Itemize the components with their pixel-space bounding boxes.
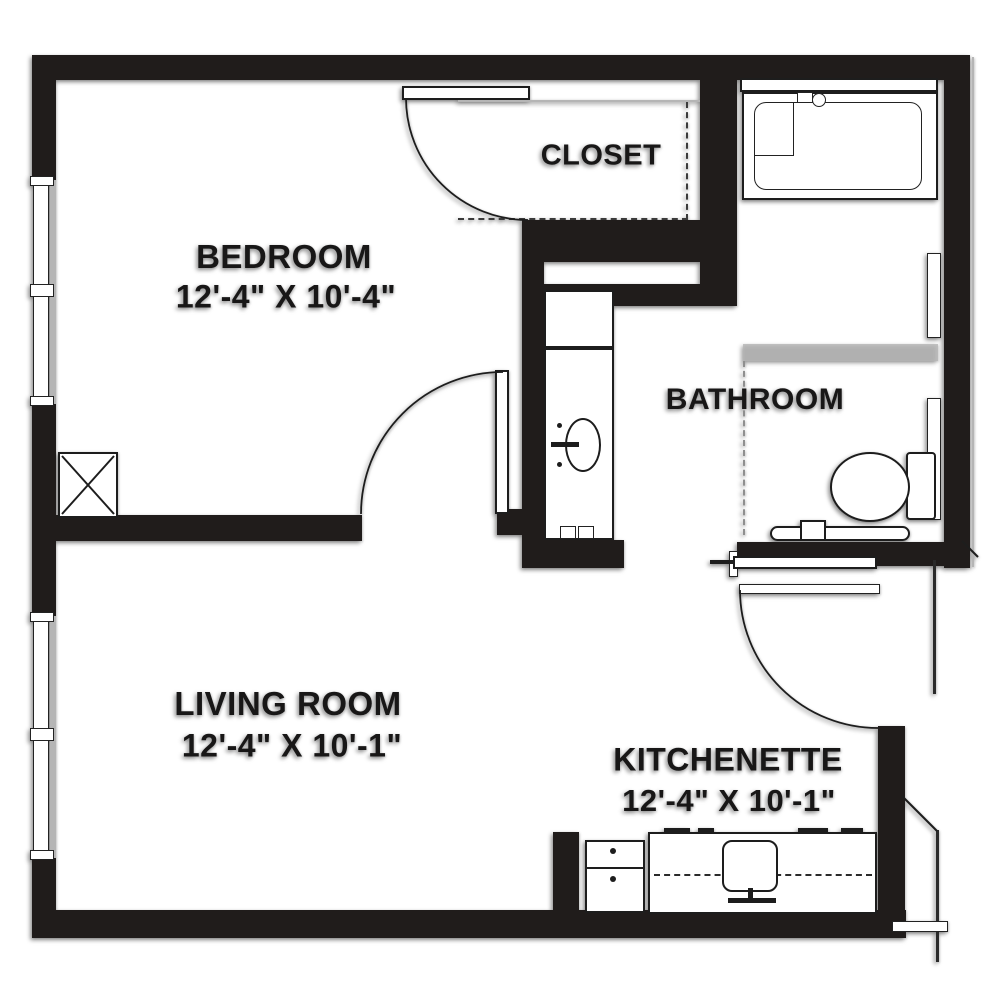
stove-burner-top xyxy=(610,848,616,854)
bottom-wall xyxy=(40,910,906,938)
floor-plan: BEDROOM 12'-4" X 10'-4" CLOSET BATHROOM … xyxy=(0,0,1000,1000)
bedroom-window-bottom-tick xyxy=(30,396,54,406)
closet-bottom-wall xyxy=(522,220,722,262)
kitchen-sink xyxy=(722,840,778,892)
vanity-cabinet xyxy=(544,290,614,348)
stove-divider xyxy=(587,867,643,869)
kitchenette-label: KITCHENETTE xyxy=(613,742,843,779)
bathtub-rim xyxy=(740,78,938,92)
left-wall-upper xyxy=(32,55,56,180)
bathtub-step xyxy=(754,102,794,156)
counter-dash-4 xyxy=(841,828,863,833)
living-window-top-tick xyxy=(30,612,54,622)
right-wall-recess-upper xyxy=(927,253,941,338)
bedroom-window-top-tick xyxy=(30,176,54,186)
bedroom-window-mullion xyxy=(30,284,54,297)
grab-bar-mount xyxy=(800,520,826,541)
toilet-tank xyxy=(906,452,936,520)
floor-plan-drawing: BEDROOM 12'-4" X 10'-4" CLOSET BATHROOM … xyxy=(0,0,1000,1000)
kitchenette-dimensions: 12'-4" X 10'-1" xyxy=(622,783,836,819)
living-room-label: LIVING ROOM xyxy=(174,685,401,723)
right-wall-face-line xyxy=(972,57,974,567)
entry-opening-line xyxy=(933,560,936,694)
shaft-x-box xyxy=(58,452,118,518)
kitchen-left-stub-wall xyxy=(553,832,579,914)
left-wall-middle xyxy=(32,404,56,616)
living-window-mullion xyxy=(30,728,54,741)
counter-dash-1 xyxy=(664,828,690,833)
bedroom-door-leaf xyxy=(495,370,509,514)
kitchen-right-wall xyxy=(878,726,905,938)
top-wall xyxy=(40,55,970,80)
closet-label: CLOSET xyxy=(541,140,662,173)
vanity-niche-bottom-wall xyxy=(522,540,624,568)
corridor-step xyxy=(892,921,948,932)
bedroom-dimensions: 12'-4" X 10'-4" xyxy=(176,279,396,316)
bathroom-label: BATHROOM xyxy=(666,383,844,417)
tub-faucet-control xyxy=(797,92,813,103)
corridor-diagonal xyxy=(902,796,937,831)
corridor-wall-line xyxy=(936,830,939,962)
living-room-dimensions: 12'-4" X 10'-1" xyxy=(182,728,402,765)
kitchen-faucet-bar xyxy=(728,898,776,903)
stove-burner-bottom xyxy=(610,876,616,882)
bathroom-door-leaf xyxy=(733,556,877,569)
living-window-bottom-tick xyxy=(30,850,54,860)
counter-dash-3 xyxy=(798,828,828,833)
grab-bar xyxy=(770,526,910,541)
niche-switch-right xyxy=(578,526,594,539)
vanity-faucet-dot-top xyxy=(557,423,562,428)
right-wall-bathroom xyxy=(944,55,970,568)
bedroom-label: BEDROOM xyxy=(196,238,372,276)
toilet-bowl xyxy=(830,452,910,522)
entry-door-swing-arc xyxy=(740,590,878,728)
vanity-faucet-dot-bottom xyxy=(557,462,562,467)
tub-faucet xyxy=(812,93,826,107)
bathroom-door-threshold xyxy=(739,584,880,594)
closet-door-leaf xyxy=(402,86,530,100)
vanity-faucet-spout xyxy=(551,442,579,447)
bedroom-door-swing-arc xyxy=(361,372,503,514)
counter-dash-2 xyxy=(698,828,714,833)
bedroom-living-divider-wall xyxy=(40,515,362,541)
bathroom-beam xyxy=(743,344,938,361)
niche-switch-left xyxy=(560,526,576,539)
